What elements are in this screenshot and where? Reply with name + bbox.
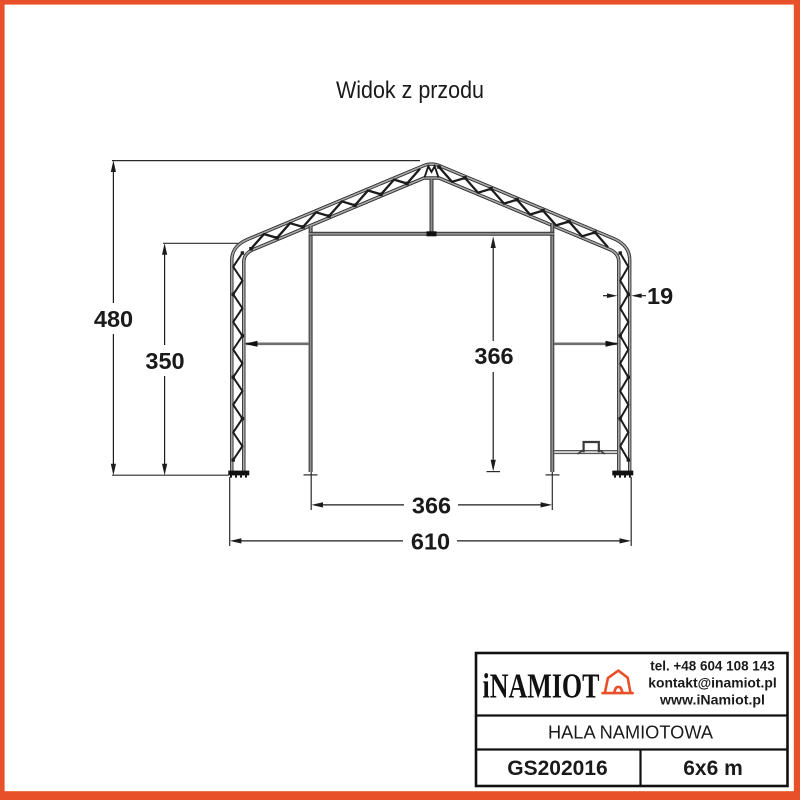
svg-text:610: 610 [411, 529, 450, 555]
svg-text:366: 366 [412, 493, 451, 519]
svg-text:350: 350 [145, 348, 184, 374]
svg-text:www.iNamiot.pl: www.iNamiot.pl [659, 692, 765, 708]
svg-text:HALA NAMIOTOWA: HALA NAMIOTOWA [548, 722, 714, 743]
svg-text:480: 480 [94, 306, 133, 332]
svg-text:kontakt@inamiot.pl: kontakt@inamiot.pl [648, 675, 777, 691]
svg-text:6x6 m: 6x6 m [683, 757, 743, 780]
svg-text:GS202016: GS202016 [507, 757, 607, 780]
svg-text:tel. +48 604 108 143: tel. +48 604 108 143 [650, 658, 775, 674]
svg-text:366: 366 [474, 343, 513, 369]
svg-text:iNAMIOT: iNAMIOT [483, 667, 600, 706]
svg-text:19: 19 [647, 283, 673, 309]
svg-text:Widok z przodu: Widok z przodu [336, 77, 484, 104]
